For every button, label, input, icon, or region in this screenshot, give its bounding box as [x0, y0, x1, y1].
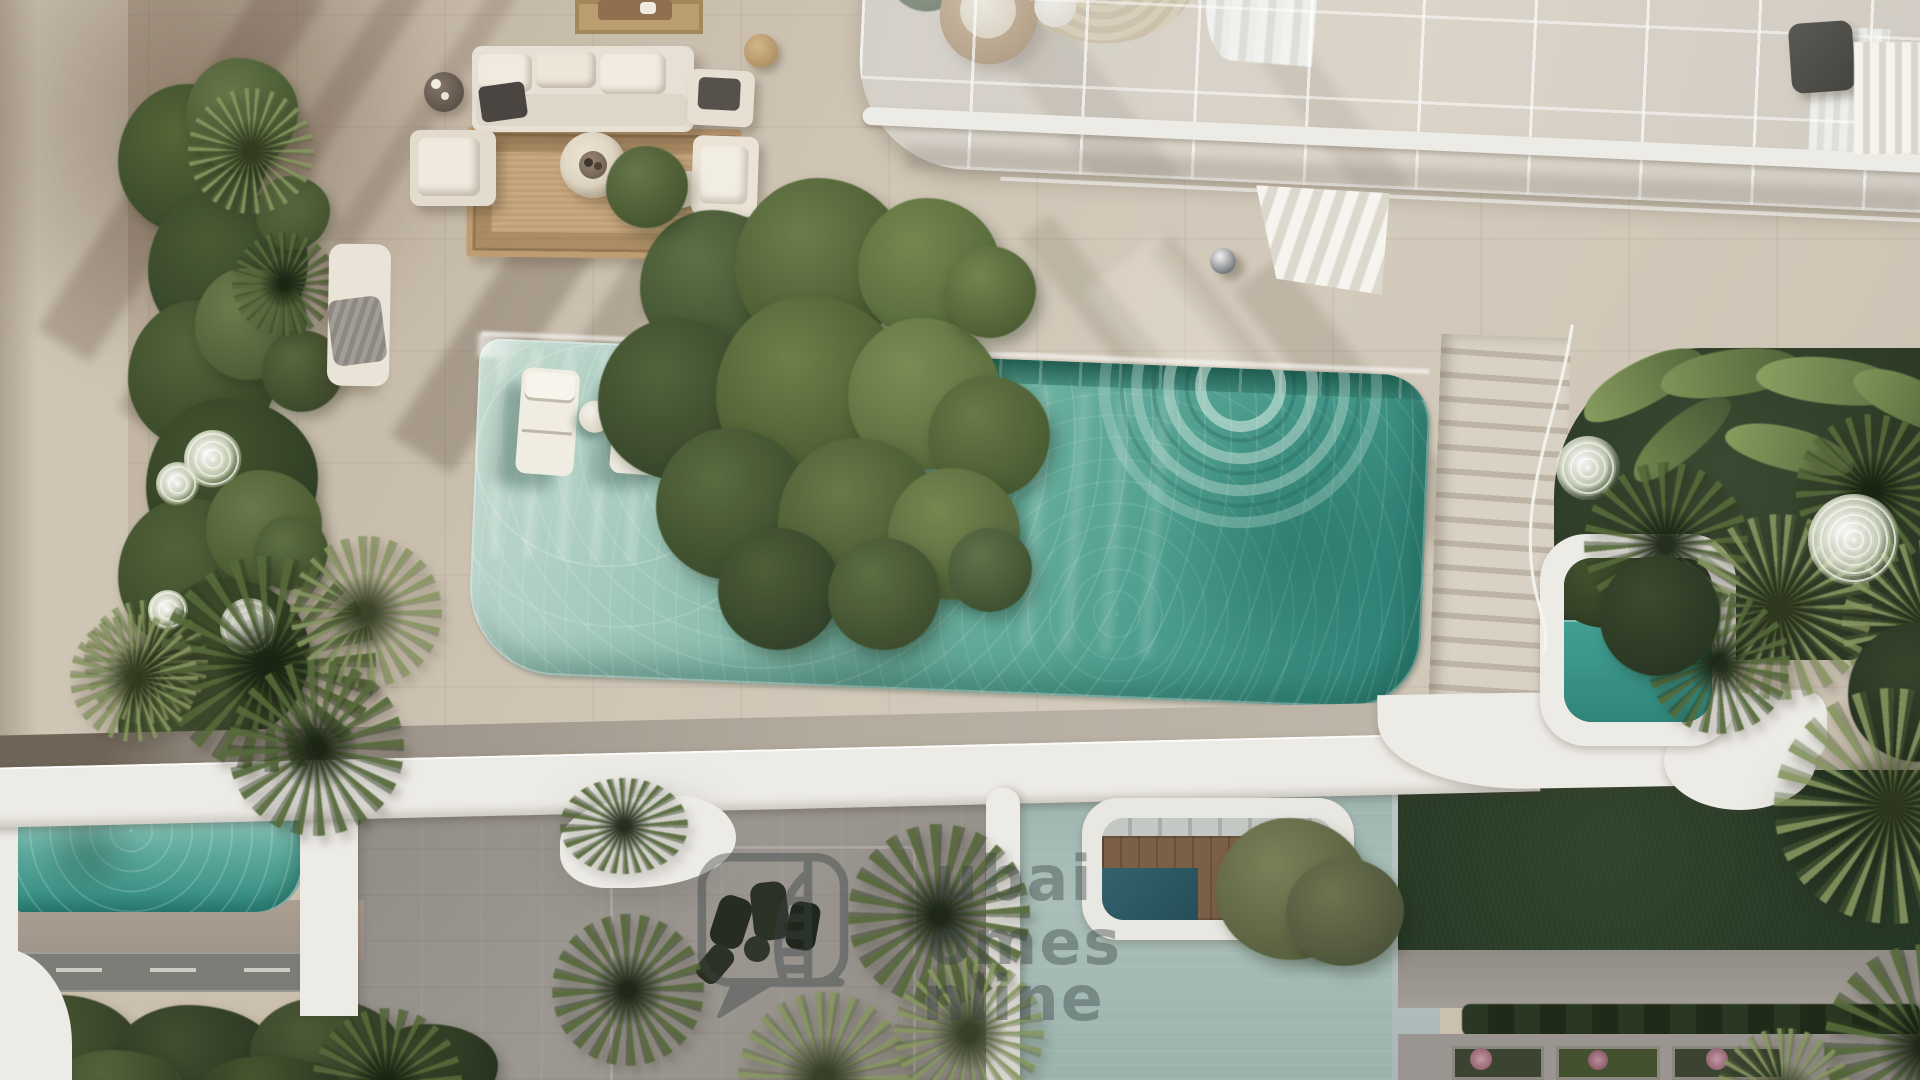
table-tray [579, 151, 607, 179]
flower-pink [1470, 1048, 1492, 1070]
pool-steps-fan [1071, 338, 1423, 596]
flower-cluster [156, 462, 200, 506]
throw-blanket [478, 81, 529, 123]
ribbon-divider [300, 804, 358, 1016]
woven-pouf [744, 34, 778, 68]
tray-cup [594, 162, 602, 170]
tree-blob [606, 146, 688, 228]
dubai-homes-logo-icon [676, 844, 868, 1024]
grass-tuft [560, 778, 688, 874]
aerial-villa-render: ubai omes nline [0, 0, 1920, 1080]
armchair-cushion [418, 138, 480, 196]
road-dash [244, 968, 290, 972]
lounge-chair-dark [1788, 20, 1857, 94]
throw-blanket [326, 295, 388, 367]
armchair [691, 135, 760, 217]
tray-cup [584, 158, 593, 167]
candle [441, 92, 449, 100]
armchair-cushion [697, 77, 741, 111]
candle [431, 79, 441, 89]
sofa-cushion [536, 52, 596, 88]
courtyard-tree [1286, 858, 1404, 966]
wood-bench [598, 0, 672, 20]
chrome-object [1210, 248, 1236, 274]
flower-cluster [1556, 436, 1620, 500]
palm-tree [228, 660, 404, 836]
road-dash [56, 968, 102, 972]
sofa-cushion [600, 54, 666, 94]
flower-cluster [1808, 494, 1900, 586]
tree-blob [718, 528, 840, 650]
palm-tree [232, 232, 336, 336]
pool-corner-glint [478, 333, 537, 359]
road-dash [150, 968, 196, 972]
planter-box [1556, 1046, 1660, 1080]
palm-tree [70, 614, 198, 742]
water-shadow [24, 818, 154, 888]
tree-blob [828, 538, 940, 650]
tree-blob [948, 528, 1032, 612]
curtain [1854, 42, 1920, 154]
tree-blob [944, 246, 1036, 338]
armchair [410, 130, 496, 206]
palm-tree [188, 88, 314, 214]
armchair-cushion [699, 145, 749, 205]
watermark-text: ubai [934, 848, 1094, 910]
planter-box [1452, 1046, 1544, 1080]
watermark-text: nline [922, 968, 1105, 1030]
armchair [687, 68, 756, 127]
bench-pillow [640, 2, 656, 14]
sofa [472, 46, 694, 132]
flower-pink [1588, 1050, 1608, 1070]
